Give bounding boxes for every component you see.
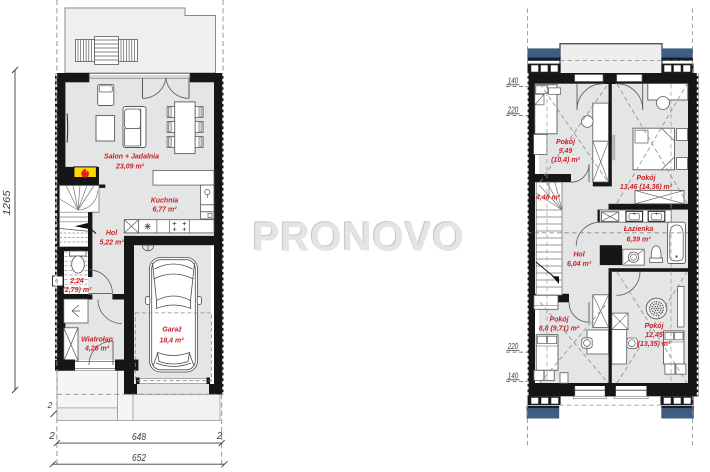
svg-text:Łazienka: Łazienka	[623, 226, 654, 233]
svg-text:Pokój: Pokój	[549, 317, 569, 324]
svg-text:4,26 m²: 4,26 m²	[84, 346, 110, 353]
svg-text:Salon + Jadalnia: Salon + Jadalnia	[104, 154, 159, 161]
svg-text:140: 140	[508, 76, 519, 86]
svg-text:Hol: Hol	[573, 252, 585, 259]
svg-text:648: 648	[132, 432, 146, 443]
svg-text:18,4 m²: 18,4 m²	[159, 338, 184, 345]
svg-text:5,22 m²: 5,22 m²	[99, 240, 124, 247]
svg-text:220: 220	[507, 341, 518, 351]
svg-text:6,04 m²: 6,04 m²	[567, 261, 592, 268]
svg-text:(2,79) m²: (2,79) m²	[63, 287, 92, 294]
svg-text:8,8 (9,71) m²: 8,8 (9,71) m²	[539, 326, 580, 333]
svg-text:140: 140	[508, 371, 519, 381]
svg-text:Hol: Hol	[106, 230, 118, 237]
svg-text:2: 2	[48, 431, 55, 442]
svg-text:PRONOVO: PRONOVO	[253, 214, 465, 260]
svg-text:652: 652	[132, 453, 146, 464]
svg-text:2,24: 2,24	[69, 278, 84, 285]
svg-text:220: 220	[507, 105, 518, 115]
svg-text:1265: 1265	[2, 190, 13, 215]
svg-text:23,09 m²: 23,09 m²	[115, 164, 145, 171]
svg-text:Kuchnia: Kuchnia	[151, 198, 179, 205]
svg-text:13,46 (14,36) m²: 13,46 (14,36) m²	[620, 184, 673, 191]
svg-text:Pokój: Pokój	[636, 175, 656, 182]
svg-text:Garaż: Garaż	[162, 327, 182, 334]
svg-text:2: 2	[47, 400, 53, 410]
svg-text:6,77 m²: 6,77 m²	[152, 207, 177, 214]
svg-text:12,45: 12,45	[645, 332, 663, 339]
svg-text:Wiatrołap: Wiatrołap	[81, 337, 114, 344]
svg-text:9,49: 9,49	[559, 148, 573, 155]
svg-text:4,46 m²: 4,46 m²	[535, 195, 561, 202]
svg-text:6,39 m²: 6,39 m²	[626, 237, 651, 244]
svg-text:(10,4) m²: (10,4) m²	[551, 157, 580, 164]
svg-text:2: 2	[216, 431, 223, 442]
